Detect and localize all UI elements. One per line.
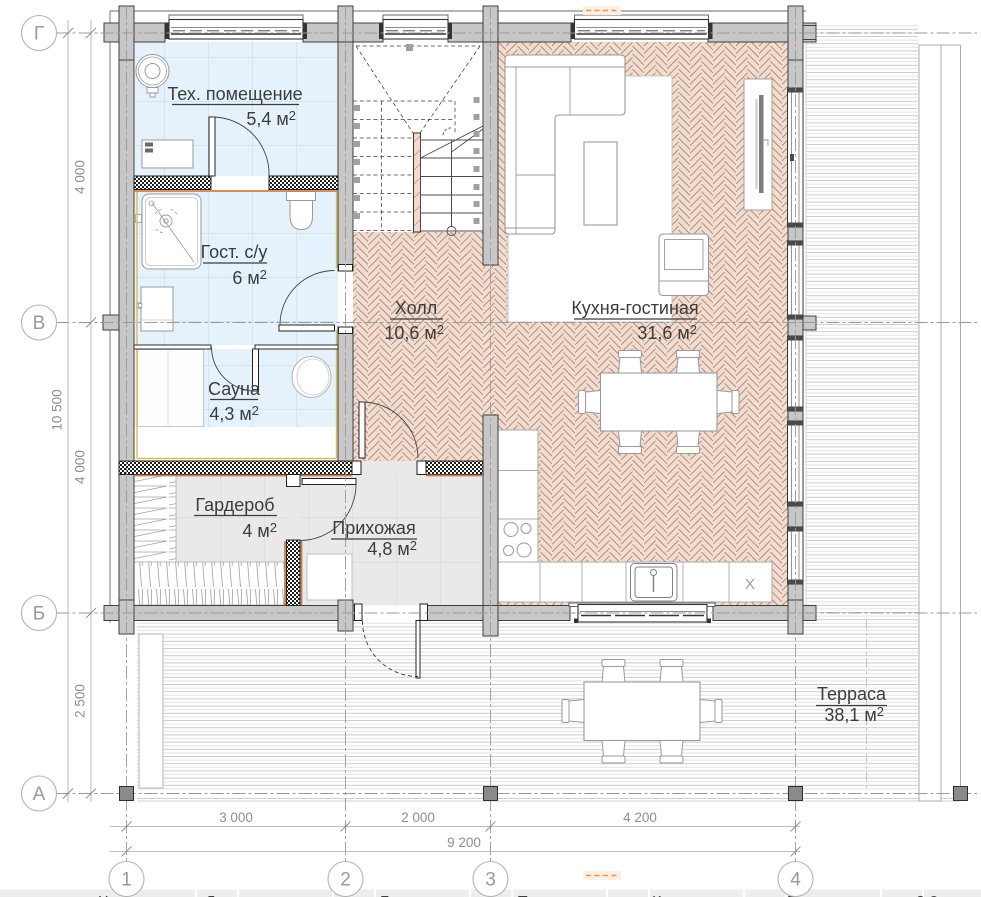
svg-text:10,6 м2: 10,6 м2 — [384, 322, 444, 343]
svg-text:9 200: 9 200 — [447, 835, 481, 850]
svg-text:Терраса: Терраса — [817, 684, 887, 704]
svg-text:2 500: 2 500 — [73, 684, 88, 718]
svg-text:4 000: 4 000 — [73, 160, 88, 194]
svg-text:5,4 м2: 5,4 м2 — [246, 108, 296, 129]
svg-text:Б: Б — [33, 604, 45, 625]
svg-text:1: 1 — [121, 870, 132, 891]
svg-text:4 200: 4 200 — [623, 810, 657, 825]
svg-text:А: А — [33, 784, 46, 805]
svg-text:Гост. с/у: Гост. с/у — [201, 242, 268, 262]
svg-text:X: X — [745, 576, 755, 593]
svg-text:Прихожая: Прихожая — [332, 518, 415, 538]
svg-text:Сауна: Сауна — [208, 379, 261, 399]
svg-text:31,6 м2: 31,6 м2 — [637, 322, 697, 343]
svg-text:Кухня-гостиная: Кухня-гостиная — [571, 298, 698, 318]
svg-text:3: 3 — [485, 870, 496, 891]
svg-text:4 000: 4 000 — [73, 450, 88, 484]
svg-text:4,8 м2: 4,8 м2 — [367, 538, 417, 559]
svg-text:2 000: 2 000 — [401, 810, 435, 825]
svg-text:Холл: Холл — [395, 298, 437, 318]
svg-text:Г: Г — [34, 24, 44, 45]
svg-text:В: В — [33, 313, 46, 334]
svg-text:Тех. помещение: Тех. помещение — [167, 84, 302, 104]
svg-text:4,3 м2: 4,3 м2 — [209, 403, 259, 424]
svg-text:10 500: 10 500 — [50, 389, 65, 430]
svg-text:3 000: 3 000 — [219, 810, 253, 825]
svg-text:4: 4 — [790, 870, 801, 891]
svg-text:Гардероб: Гардероб — [195, 495, 274, 515]
svg-text:38,1 м2: 38,1 м2 — [824, 704, 884, 725]
svg-text:2: 2 — [340, 870, 351, 891]
